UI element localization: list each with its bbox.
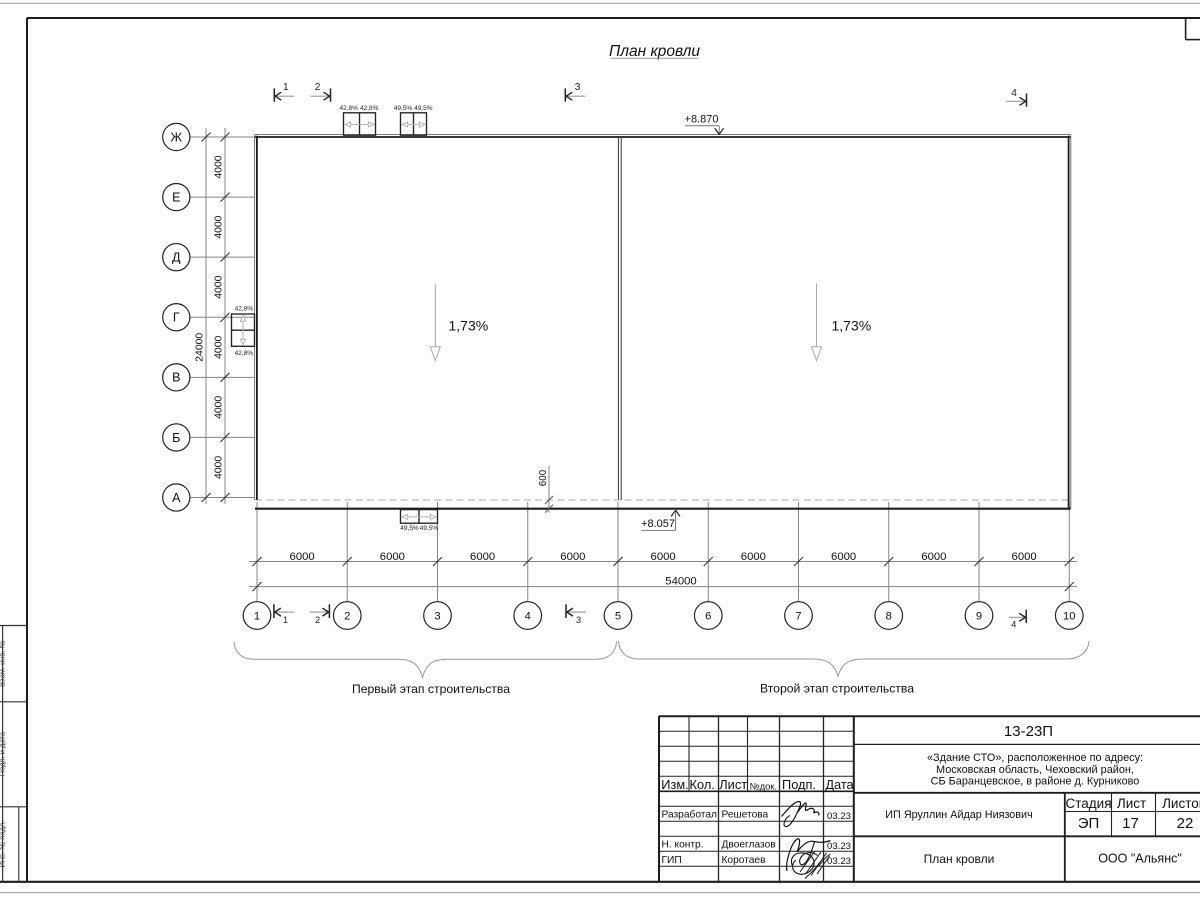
svg-text:4: 4 bbox=[1011, 620, 1016, 630]
svg-text:4: 4 bbox=[1011, 87, 1017, 99]
svg-text:Дата: Дата bbox=[825, 777, 854, 792]
svg-text:17: 17 bbox=[1122, 815, 1139, 832]
svg-text:План кровли: План кровли bbox=[609, 43, 700, 60]
svg-text:Н. контр.: Н. контр. bbox=[662, 840, 704, 851]
svg-text:Б: Б bbox=[172, 431, 180, 445]
svg-text:План кровли: План кровли bbox=[924, 852, 995, 866]
svg-text:6000: 6000 bbox=[470, 551, 495, 563]
svg-text:6000: 6000 bbox=[831, 551, 856, 563]
svg-text:7: 7 bbox=[795, 611, 801, 623]
svg-text:Инв. № подл.: Инв. № подл. bbox=[0, 821, 7, 868]
svg-text:49,5%: 49,5% bbox=[394, 105, 413, 112]
svg-text:Кол.: Кол. bbox=[690, 777, 715, 792]
svg-text:Двоеглазов: Двоеглазов bbox=[722, 840, 776, 851]
svg-text:Е: Е bbox=[172, 190, 180, 204]
svg-text:49,5%: 49,5% bbox=[414, 105, 433, 112]
svg-text:22: 22 bbox=[1177, 815, 1194, 832]
svg-text:ЭП: ЭП bbox=[1078, 815, 1100, 832]
svg-text:42,8%: 42,8% bbox=[360, 105, 379, 112]
svg-text:Ж: Ж bbox=[170, 130, 182, 144]
svg-text:№док.: №док. bbox=[750, 781, 777, 792]
svg-text:03.23: 03.23 bbox=[827, 856, 851, 867]
svg-text:4000: 4000 bbox=[213, 396, 224, 419]
svg-text:СБ Баранцевское, в районе д. К: СБ Баранцевское, в районе д. Курниково bbox=[931, 776, 1140, 788]
svg-text:1: 1 bbox=[283, 615, 288, 625]
svg-text:42,8%: 42,8% bbox=[235, 350, 254, 357]
svg-text:Московская область, Чеховский: Московская область, Чеховский район, bbox=[936, 764, 1134, 776]
svg-text:03.23: 03.23 bbox=[827, 811, 851, 822]
svg-text:10: 10 bbox=[1063, 611, 1075, 623]
svg-text:Изм.: Изм. bbox=[661, 777, 688, 792]
svg-text:6000: 6000 bbox=[741, 551, 766, 563]
svg-text:«Здание СТО», расположенное по: «Здание СТО», расположенное по адресу: bbox=[927, 752, 1143, 764]
svg-text:Д: Д bbox=[172, 251, 181, 265]
svg-text:42,8%: 42,8% bbox=[339, 105, 358, 112]
svg-text:5: 5 bbox=[615, 611, 621, 623]
svg-text:4000: 4000 bbox=[213, 456, 224, 479]
svg-text:4: 4 bbox=[525, 611, 531, 623]
svg-text:1,73%: 1,73% bbox=[832, 318, 872, 334]
svg-text:42,8%: 42,8% bbox=[235, 306, 254, 313]
svg-text:Коротаев: Коротаев bbox=[722, 855, 766, 866]
svg-text:6000: 6000 bbox=[380, 551, 405, 563]
svg-text:Г: Г bbox=[173, 311, 180, 325]
svg-text:4000: 4000 bbox=[213, 336, 224, 359]
svg-text:4000: 4000 bbox=[213, 275, 224, 298]
svg-text:03.23: 03.23 bbox=[827, 841, 851, 852]
svg-text:4000: 4000 bbox=[213, 215, 224, 238]
svg-text:+8.870: +8.870 bbox=[685, 114, 719, 126]
svg-text:Листов: Листов bbox=[1162, 796, 1200, 811]
svg-text:ГИП: ГИП bbox=[662, 855, 682, 866]
svg-text:24000: 24000 bbox=[195, 333, 206, 362]
svg-text:4000: 4000 bbox=[213, 155, 224, 178]
svg-text:9: 9 bbox=[976, 611, 982, 623]
svg-text:Стадия: Стадия bbox=[1065, 796, 1111, 811]
svg-text:ИП Яруллин Айдар Ниязович: ИП Яруллин Айдар Ниязович bbox=[885, 809, 1032, 821]
svg-text:Подп.: Подп. bbox=[782, 777, 816, 792]
svg-text:1,73%: 1,73% bbox=[449, 318, 489, 334]
svg-text:6000: 6000 bbox=[921, 551, 946, 563]
svg-text:Лист: Лист bbox=[1117, 796, 1146, 811]
svg-text:2: 2 bbox=[344, 611, 350, 623]
svg-text:6000: 6000 bbox=[651, 551, 676, 563]
svg-text:Первый этап строительства: Первый этап строительства bbox=[352, 682, 510, 696]
svg-text:2: 2 bbox=[315, 81, 321, 93]
svg-text:3: 3 bbox=[575, 81, 581, 93]
svg-text:6000: 6000 bbox=[290, 551, 315, 563]
svg-text:А: А bbox=[172, 491, 181, 505]
svg-text:Разработал: Разработал bbox=[662, 809, 718, 821]
svg-text:600: 600 bbox=[538, 469, 549, 486]
svg-text:+8.057: +8.057 bbox=[641, 518, 675, 530]
svg-text:6000: 6000 bbox=[1012, 551, 1037, 563]
svg-text:2: 2 bbox=[315, 615, 320, 625]
svg-text:54000: 54000 bbox=[665, 576, 696, 588]
svg-text:49,5%: 49,5% bbox=[400, 525, 419, 532]
svg-text:6: 6 bbox=[705, 611, 711, 623]
svg-text:13-23П: 13-23П bbox=[1004, 723, 1053, 740]
svg-text:8: 8 bbox=[886, 611, 892, 623]
svg-text:3: 3 bbox=[434, 611, 440, 623]
svg-text:Лист: Лист bbox=[719, 777, 747, 792]
svg-text:1: 1 bbox=[254, 611, 260, 623]
svg-text:Взам. инв. №: Взам. инв. № bbox=[0, 640, 7, 686]
svg-text:В: В bbox=[172, 371, 180, 385]
svg-text:Второй этап строительства: Второй этап строительства bbox=[760, 682, 914, 696]
svg-text:3: 3 bbox=[576, 615, 581, 625]
svg-text:ООО "Альянс": ООО "Альянс" bbox=[1098, 852, 1182, 866]
svg-text:Решетова: Решетова bbox=[722, 810, 769, 821]
svg-text:6000: 6000 bbox=[560, 551, 585, 563]
svg-text:Подп. и дата: Подп. и дата bbox=[0, 731, 7, 776]
svg-text:49,5%: 49,5% bbox=[420, 525, 439, 532]
svg-text:1: 1 bbox=[283, 81, 289, 93]
